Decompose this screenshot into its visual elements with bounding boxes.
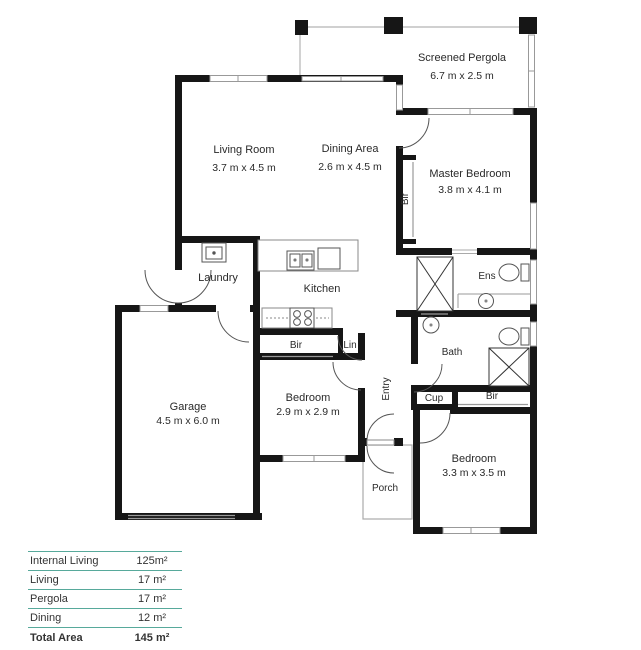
bedroom3-door-arc xyxy=(420,413,450,443)
bedroom3-dims: 3.3 m x 3.5 m xyxy=(442,467,506,479)
laundry-sink xyxy=(202,243,226,262)
pergola-outline xyxy=(300,27,520,75)
room-labels: Screened Pergola 6.7 m x 2.5 m Living Ro… xyxy=(156,52,510,494)
total-value: 145 m² xyxy=(122,632,182,644)
area-summary-table: Internal Living 125m² Living 17 m² Pergo… xyxy=(28,551,182,648)
table-total-row: Total Area 145 m² xyxy=(28,627,182,648)
table-row: Pergola 17 m² xyxy=(28,589,182,608)
master-label: Master Bedroom xyxy=(429,168,510,180)
pergola-post xyxy=(519,17,537,34)
bedroom3-label: Bedroom xyxy=(452,453,497,465)
row-value: 125m² xyxy=(122,555,182,567)
bath-label: Bath xyxy=(442,347,463,358)
front-door-arc-in xyxy=(367,414,394,441)
bedroom2-door-arc xyxy=(333,362,361,390)
bath-window xyxy=(531,322,537,346)
sliding-doors xyxy=(128,162,528,519)
front-door-leaf xyxy=(367,440,394,445)
row-value: 17 m² xyxy=(122,593,182,605)
bath-shower xyxy=(489,348,529,386)
porch-label: Porch xyxy=(372,483,398,494)
bedroom2-dims: 2.9 m x 2.9 m xyxy=(276,406,340,418)
bir-bedroom3-label: Bir xyxy=(486,391,499,402)
garage-top-window xyxy=(140,306,168,312)
bir-master-label: Bir xyxy=(400,192,411,205)
pergola-post xyxy=(384,17,403,34)
kitchen-island xyxy=(258,240,358,271)
bath-toilet xyxy=(499,328,529,345)
bedroom3-window xyxy=(443,528,500,534)
ens-toilet xyxy=(499,264,529,281)
kitchen-cooktop xyxy=(262,308,332,328)
dining-window xyxy=(302,77,383,82)
laundry-exterior-door-arc xyxy=(145,270,178,303)
ens-shower xyxy=(417,257,453,311)
row-label: Pergola xyxy=(28,593,122,605)
table-row: Dining 12 m² xyxy=(28,608,182,627)
pergola-right-window xyxy=(529,35,535,107)
garage-label: Garage xyxy=(170,401,207,413)
row-value: 12 m² xyxy=(122,612,182,624)
living-window xyxy=(210,76,267,82)
ens-label: Ens xyxy=(478,271,495,282)
bedroom2-label: Bedroom xyxy=(286,392,331,404)
laundry-garage-opening xyxy=(216,305,250,312)
pergola-bottom-window xyxy=(428,109,513,115)
floorplan-drawing: Screened Pergola 6.7 m x 2.5 m Living Ro… xyxy=(0,0,641,545)
master-dims: 3.8 m x 4.1 m xyxy=(438,184,502,196)
porch-outline xyxy=(363,445,412,519)
row-label: Internal Living xyxy=(28,555,122,567)
cup-label: Cup xyxy=(425,393,444,404)
bedroom2-window xyxy=(283,456,345,462)
dining-side-window xyxy=(397,85,403,110)
laundry-garage-door-arc xyxy=(218,311,249,342)
dining-label: Dining Area xyxy=(322,143,380,155)
dining-dims: 2.6 m x 4.5 m xyxy=(318,161,382,173)
master-door-arc xyxy=(399,118,429,148)
living-label: Living Room xyxy=(213,144,274,156)
entry-label: Entry xyxy=(381,377,392,400)
total-label: Total Area xyxy=(28,632,122,644)
table-row: Living 17 m² xyxy=(28,570,182,589)
row-value: 17 m² xyxy=(122,574,182,586)
row-label: Living xyxy=(28,574,122,586)
table-row: Internal Living 125m² xyxy=(28,551,182,570)
floorplan-page: { "rooms": { "pergola": {"name": "Screen… xyxy=(0,0,641,650)
master-window xyxy=(531,203,537,249)
bir-kitchen-label: Bir xyxy=(290,340,303,351)
row-label: Dining xyxy=(28,612,122,624)
ens-window xyxy=(531,260,537,304)
kitchen-label: Kitchen xyxy=(304,283,341,295)
ens-basin xyxy=(458,294,530,309)
laundry-label: Laundry xyxy=(198,272,238,284)
pergola-label: Screened Pergola xyxy=(418,52,507,64)
living-dims: 3.7 m x 4.5 m xyxy=(212,162,276,174)
pergola-post xyxy=(295,20,308,35)
lin-label: Lin xyxy=(343,340,356,351)
garage-dims: 4.5 m x 6.0 m xyxy=(156,415,220,427)
pergola-dims: 6.7 m x 2.5 m xyxy=(430,70,494,82)
